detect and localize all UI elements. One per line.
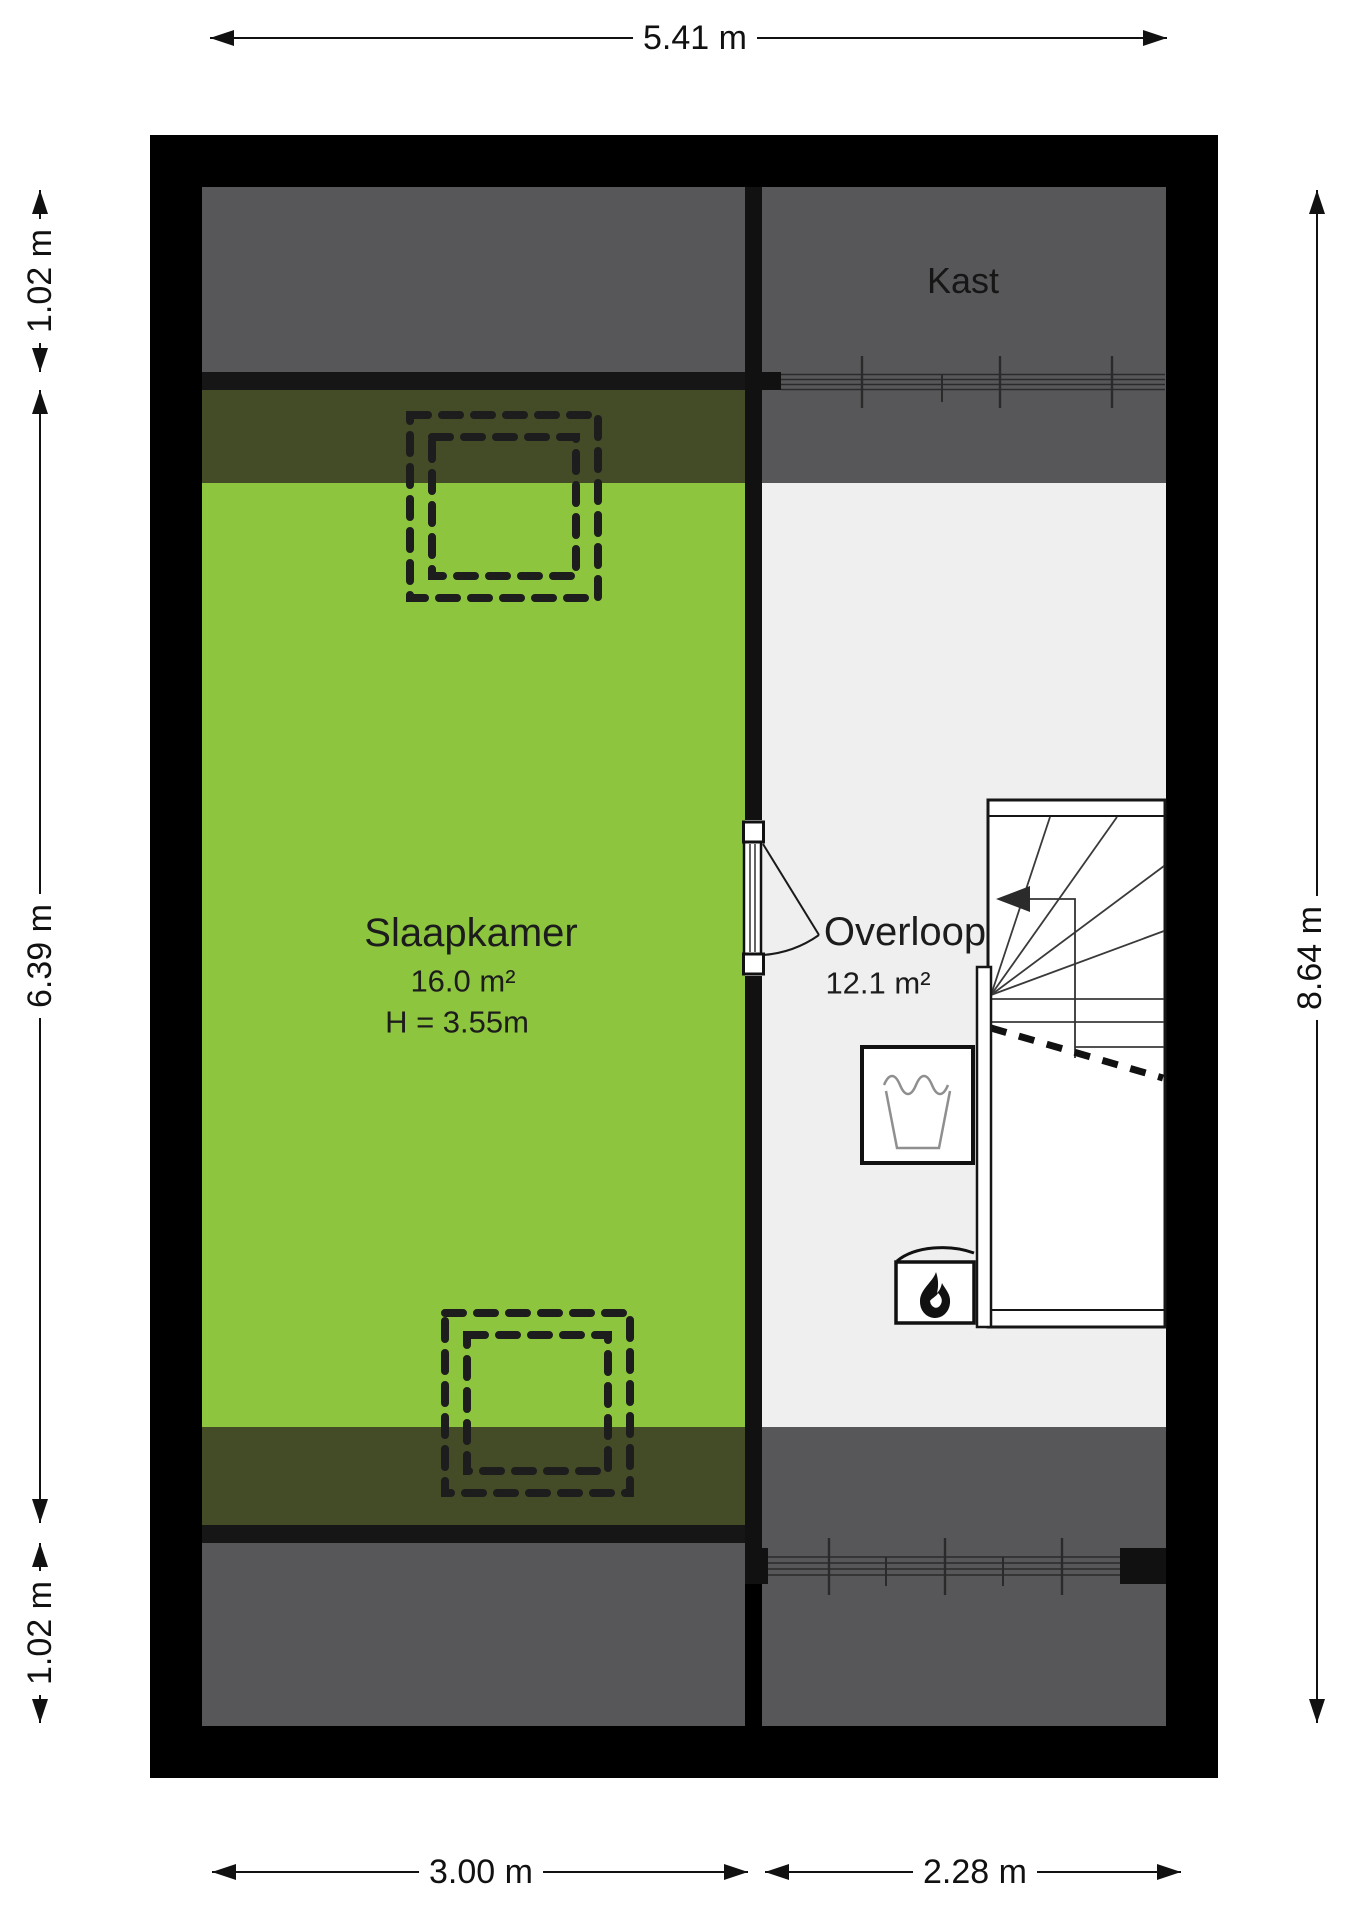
- dimension-left-top: 1.02 m: [21, 219, 59, 343]
- dimension-bottom-left: 3.00 m: [419, 1853, 543, 1891]
- dimension-top-width: 5.41 m: [633, 19, 757, 57]
- staircase: [977, 800, 1165, 1327]
- room-height-slaapkamer: H = 3.55m: [385, 1007, 529, 1038]
- dimension-bottom-right: 2.28 m: [913, 1853, 1037, 1891]
- room-label-kast: Kast: [927, 263, 999, 299]
- dimension-left-bottom: 1.02 m: [21, 1571, 59, 1695]
- floorplan-canvas: 5.41 m 3.00 m 2.28 m 1.02 m 6.39 m 1.02 …: [0, 0, 1358, 1920]
- floorplan-drawing: [0, 0, 1358, 1920]
- dimension-right-height: 8.64 m: [1291, 896, 1329, 1020]
- room-label-slaapkamer: Slaapkamer: [364, 913, 577, 953]
- washing-machine: [862, 1047, 973, 1163]
- room-area-overloop: 12.1 m²: [825, 968, 930, 999]
- stairs-railing: [977, 967, 991, 1327]
- room-label-overloop: Overloop: [824, 912, 986, 952]
- room-area-slaapkamer: 16.0 m²: [410, 966, 515, 997]
- dimension-left-middle: 6.39 m: [21, 894, 59, 1018]
